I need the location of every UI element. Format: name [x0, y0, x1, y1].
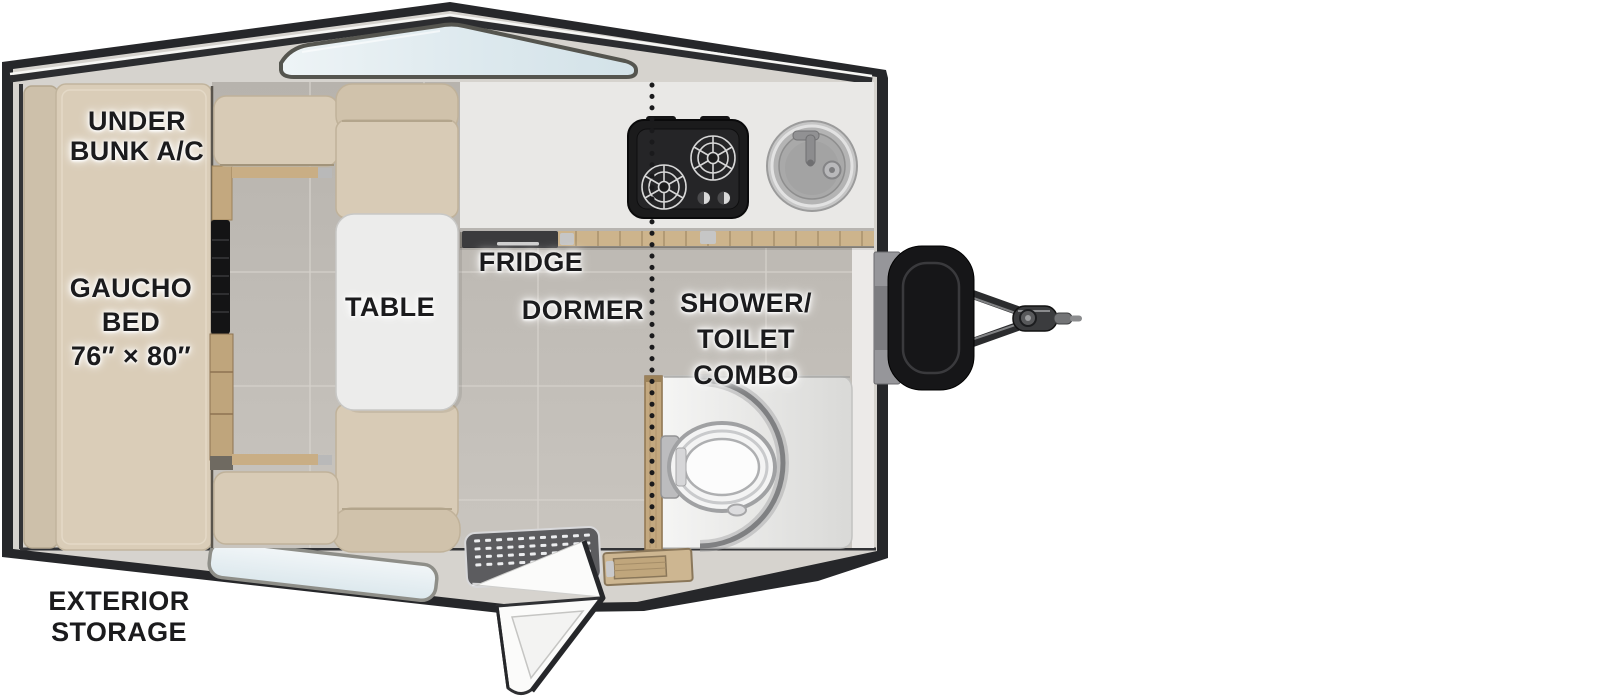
dormer-label: DORMER — [522, 295, 644, 325]
burner-right — [691, 136, 735, 180]
under-bunk-ac-label: UNDER BUNK A/C — [70, 106, 204, 166]
entry-step-mat — [603, 549, 693, 586]
floorplan-canvas: UNDER BUNK A/C GAUCHO BED 76″ × 80″ TABL… — [0, 0, 1600, 698]
shower-toilet-label-line1: SHOWER/ — [680, 285, 812, 321]
gaucho-bed-label-line2: BED — [70, 305, 192, 339]
shower-toilet-combo-label: SHOWER/ TOILET COMBO — [680, 285, 812, 393]
under-bunk-ac-label-line1: UNDER — [70, 106, 204, 136]
table-label-text: TABLE — [345, 292, 435, 322]
under-counter-wood-slats — [558, 231, 874, 246]
hitch-coupler — [1013, 306, 1082, 331]
exterior-storage-label: EXTERIOR STORAGE — [48, 586, 189, 648]
fridge-label: FRIDGE — [479, 247, 583, 277]
dinette-bench-bottom — [336, 404, 458, 520]
two-burner-cooktop — [628, 116, 748, 218]
side-cabinet — [210, 166, 233, 470]
gaucho-bed-label-line3: 76″ × 80″ — [70, 339, 192, 373]
under-bunk-ac-label-line2: BUNK A/C — [70, 136, 204, 166]
exterior-storage-label-line1: EXTERIOR — [48, 586, 189, 617]
dinette-bench-top-left — [214, 96, 338, 166]
gaucho-bed-label: GAUCHO BED 76″ × 80″ — [70, 271, 192, 373]
table-label: TABLE — [345, 292, 435, 322]
shower-toilet-label-line3: COMBO — [680, 357, 812, 393]
propane-tank-cover — [888, 246, 974, 390]
round-sink — [767, 121, 857, 211]
trailer-tongue-hitch — [874, 246, 1082, 390]
dinette-bench-top — [336, 120, 458, 218]
fridge-label-text: FRIDGE — [479, 247, 583, 277]
toilet-drain — [728, 505, 746, 516]
gaucho-bed-label-line1: GAUCHO — [70, 271, 192, 305]
shower-toilet-label-line2: TOILET — [680, 321, 812, 357]
dinette-bench-bottom-left — [214, 472, 338, 544]
front-wall-strip — [852, 230, 874, 548]
dormer-label-text: DORMER — [522, 295, 644, 325]
exterior-storage-label-line2: STORAGE — [48, 617, 189, 648]
burner-left — [642, 165, 686, 209]
shower-toilet-combo — [645, 376, 852, 550]
side-cabinet-drawers — [210, 334, 233, 460]
